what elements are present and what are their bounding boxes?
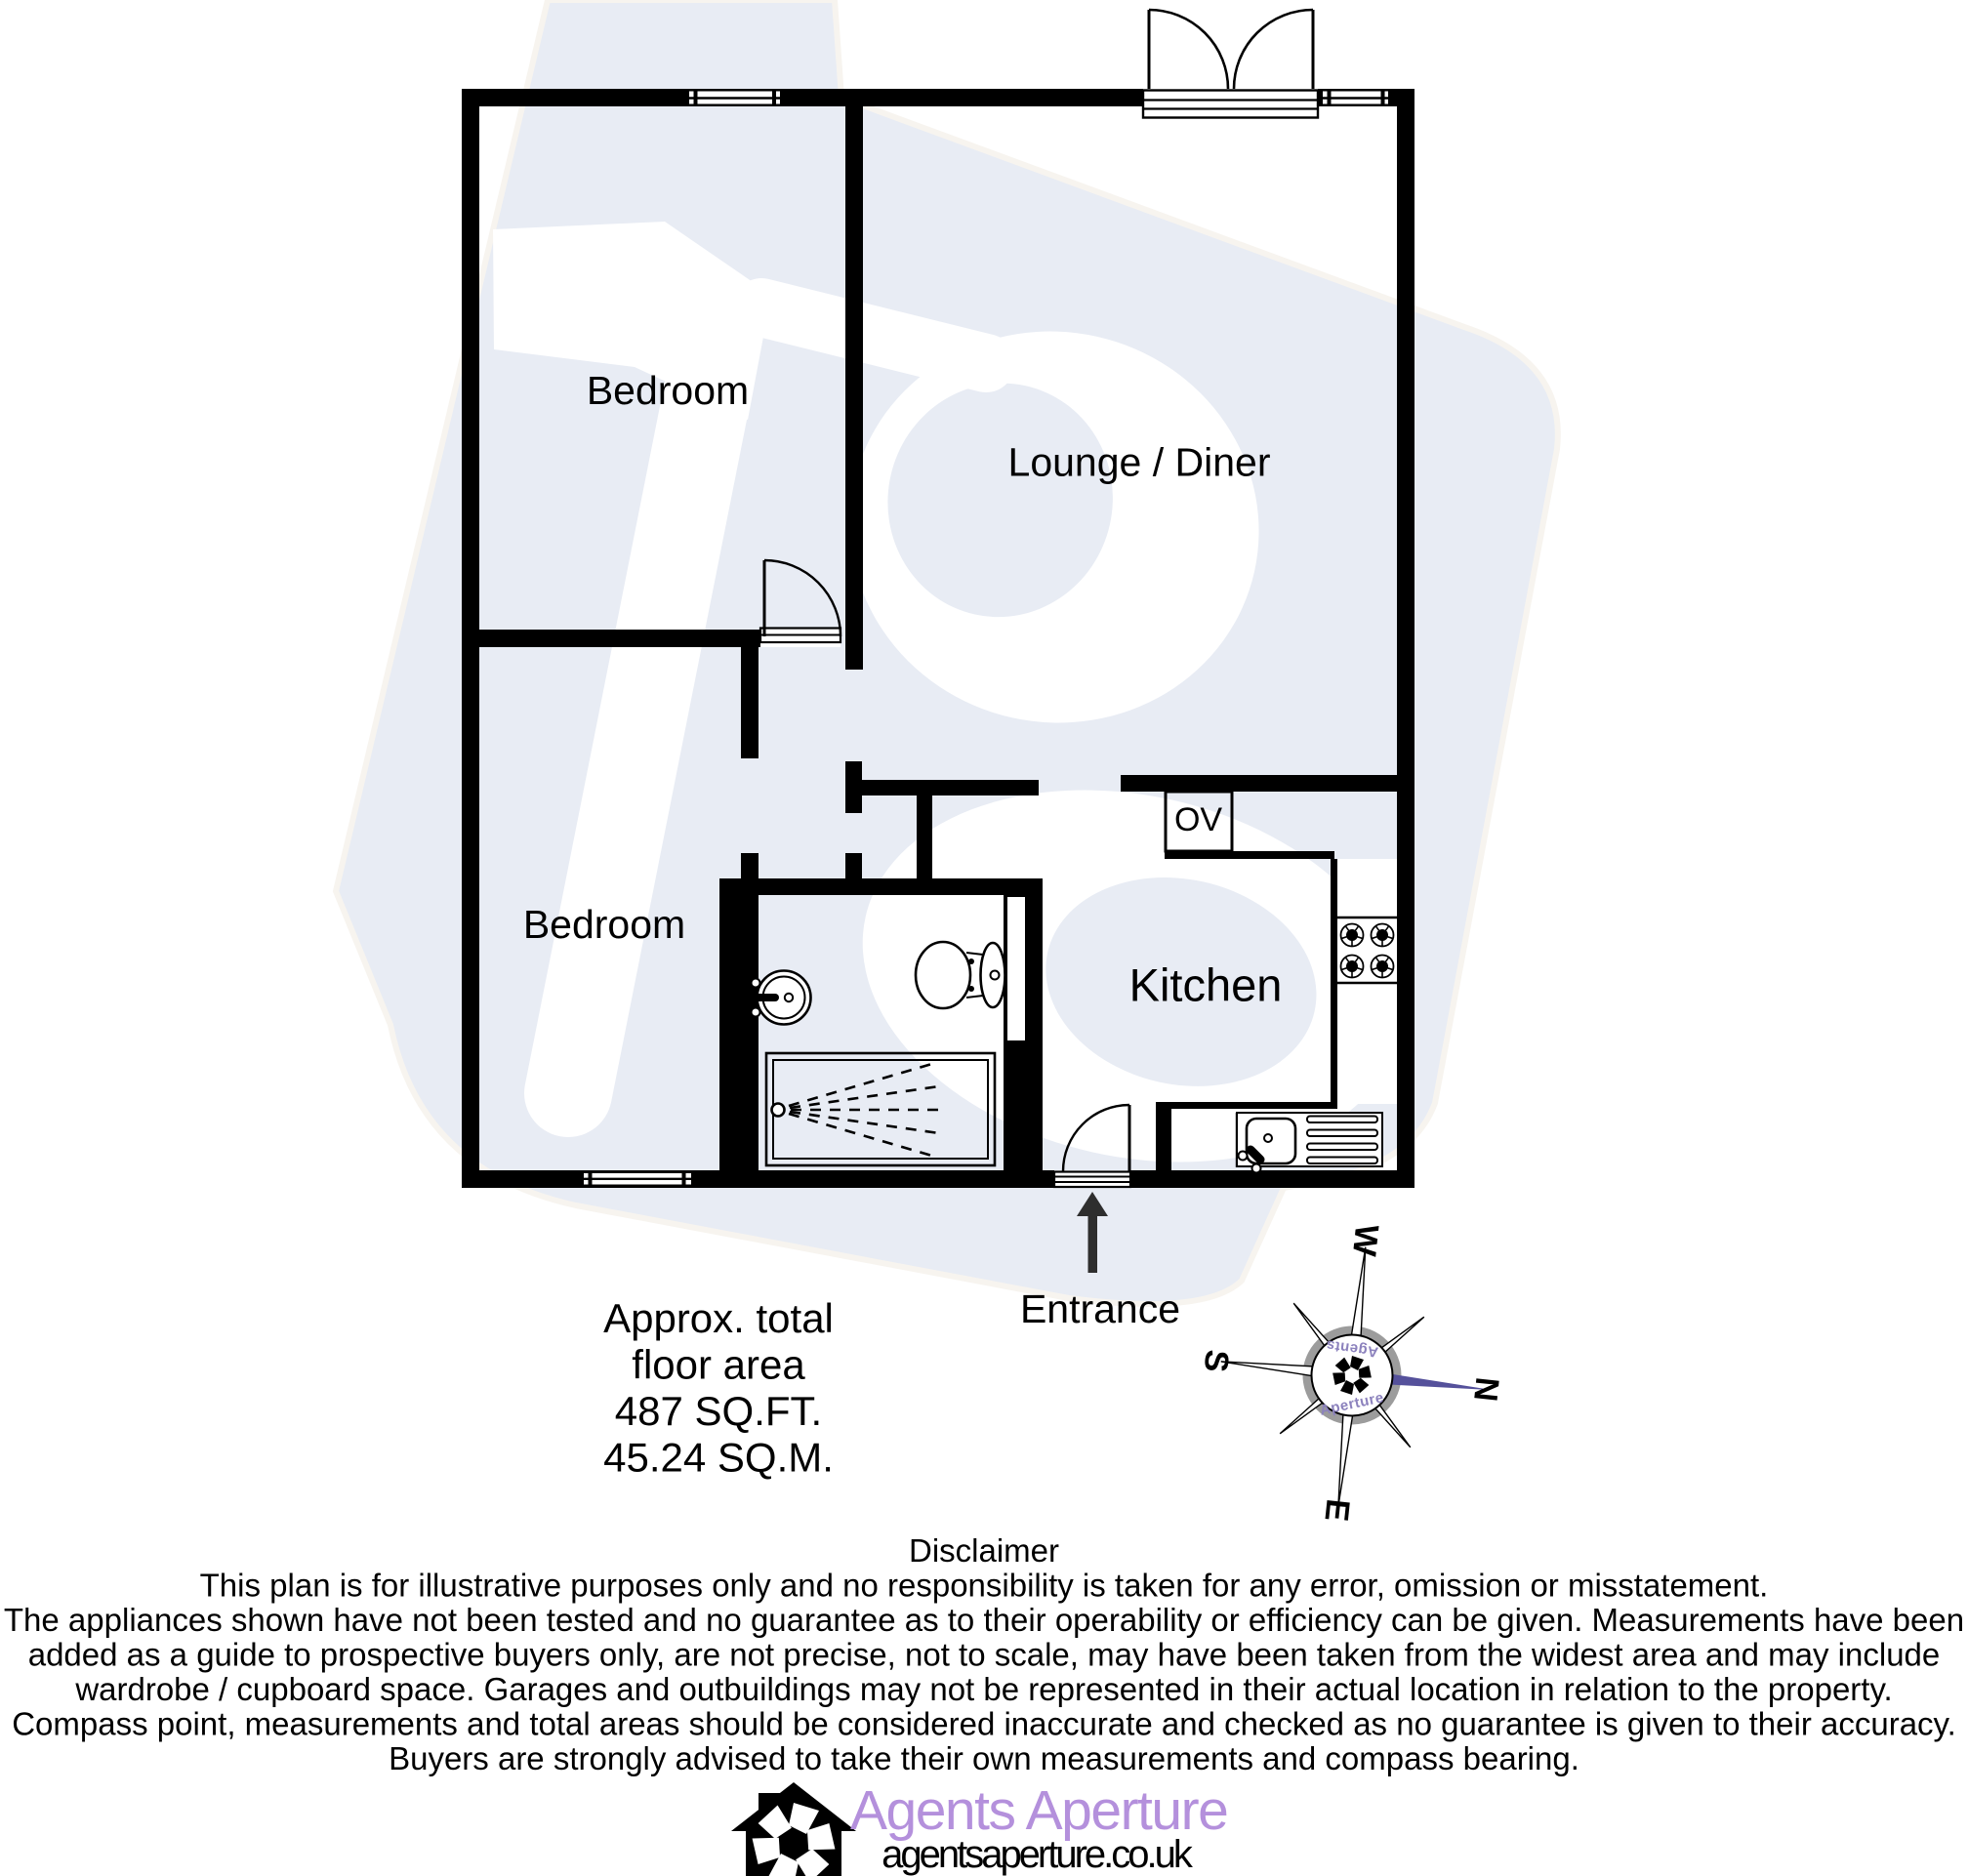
svg-text:OV: OV <box>1174 801 1222 838</box>
svg-text:wardrobe / cupboard space. Gar: wardrobe / cupboard space. Garages and o… <box>74 1671 1892 1707</box>
svg-text:Kitchen: Kitchen <box>1129 959 1283 1011</box>
svg-text:45.24 SQ.M.: 45.24 SQ.M. <box>603 1435 834 1481</box>
svg-text:Bedroom: Bedroom <box>587 368 749 413</box>
svg-text:This plan is for illustrative: This plan is for illustrative purposes o… <box>200 1568 1769 1604</box>
svg-text:Entrance: Entrance <box>1020 1286 1180 1331</box>
svg-text:487 SQ.FT.: 487 SQ.FT. <box>615 1388 822 1434</box>
svg-text:Compass point, measurements an: Compass point, measurements and total ar… <box>12 1706 1956 1742</box>
svg-text:Lounge / Diner: Lounge / Diner <box>1008 440 1271 485</box>
svg-text:N: N <box>1466 1375 1505 1403</box>
svg-text:added as a guide to prospectiv: added as a guide to prospective buyers o… <box>28 1637 1941 1673</box>
svg-text:Approx. total: Approx. total <box>603 1295 834 1341</box>
svg-text:E: E <box>1317 1497 1356 1524</box>
svg-text:floor area: floor area <box>632 1342 805 1388</box>
svg-text:S: S <box>1197 1348 1236 1374</box>
svg-text:The appliances shown have not: The appliances shown have not been teste… <box>4 1602 1964 1638</box>
svg-text:W: W <box>1345 1223 1385 1259</box>
svg-text:Buyers are strongly advised to: Buyers are strongly advised to take thei… <box>389 1740 1579 1776</box>
svg-text:Bedroom: Bedroom <box>523 902 685 947</box>
svg-text:agentsaperture.co.uk: agentsaperture.co.uk <box>881 1833 1194 1876</box>
svg-text:Disclaimer: Disclaimer <box>909 1532 1059 1569</box>
